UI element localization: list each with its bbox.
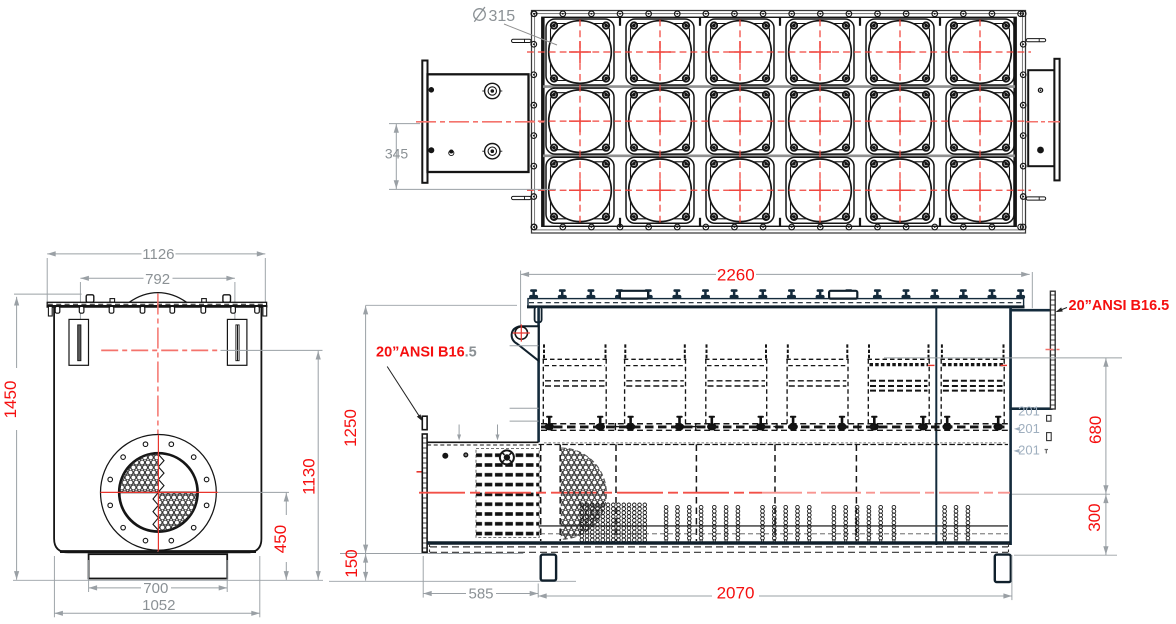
svg-text:20”ANSI B16.5: 20”ANSI B16.5 xyxy=(376,344,477,360)
svg-text:450: 450 xyxy=(271,525,290,553)
svg-text:680: 680 xyxy=(1086,416,1105,444)
svg-text:150: 150 xyxy=(342,549,361,577)
svg-text:2070: 2070 xyxy=(717,583,755,602)
svg-text:1450: 1450 xyxy=(1,381,20,419)
svg-text:2260: 2260 xyxy=(717,265,755,284)
svg-text:201: 201 xyxy=(1018,421,1040,436)
svg-text:201: 201 xyxy=(1018,404,1040,419)
svg-text:315: 315 xyxy=(489,8,516,25)
svg-text:1250: 1250 xyxy=(341,409,360,447)
svg-text:700: 700 xyxy=(143,580,168,597)
svg-text:1126: 1126 xyxy=(142,246,174,263)
svg-text:345: 345 xyxy=(385,146,409,162)
svg-text:201: 201 xyxy=(1018,442,1040,457)
svg-text:792: 792 xyxy=(145,271,170,288)
svg-text:585: 585 xyxy=(468,585,493,602)
svg-text:20”ANSI B16.5: 20”ANSI B16.5 xyxy=(1069,298,1170,314)
svg-text:300: 300 xyxy=(1085,503,1104,531)
svg-text:1052: 1052 xyxy=(142,597,175,614)
svg-text:1130: 1130 xyxy=(300,458,319,495)
